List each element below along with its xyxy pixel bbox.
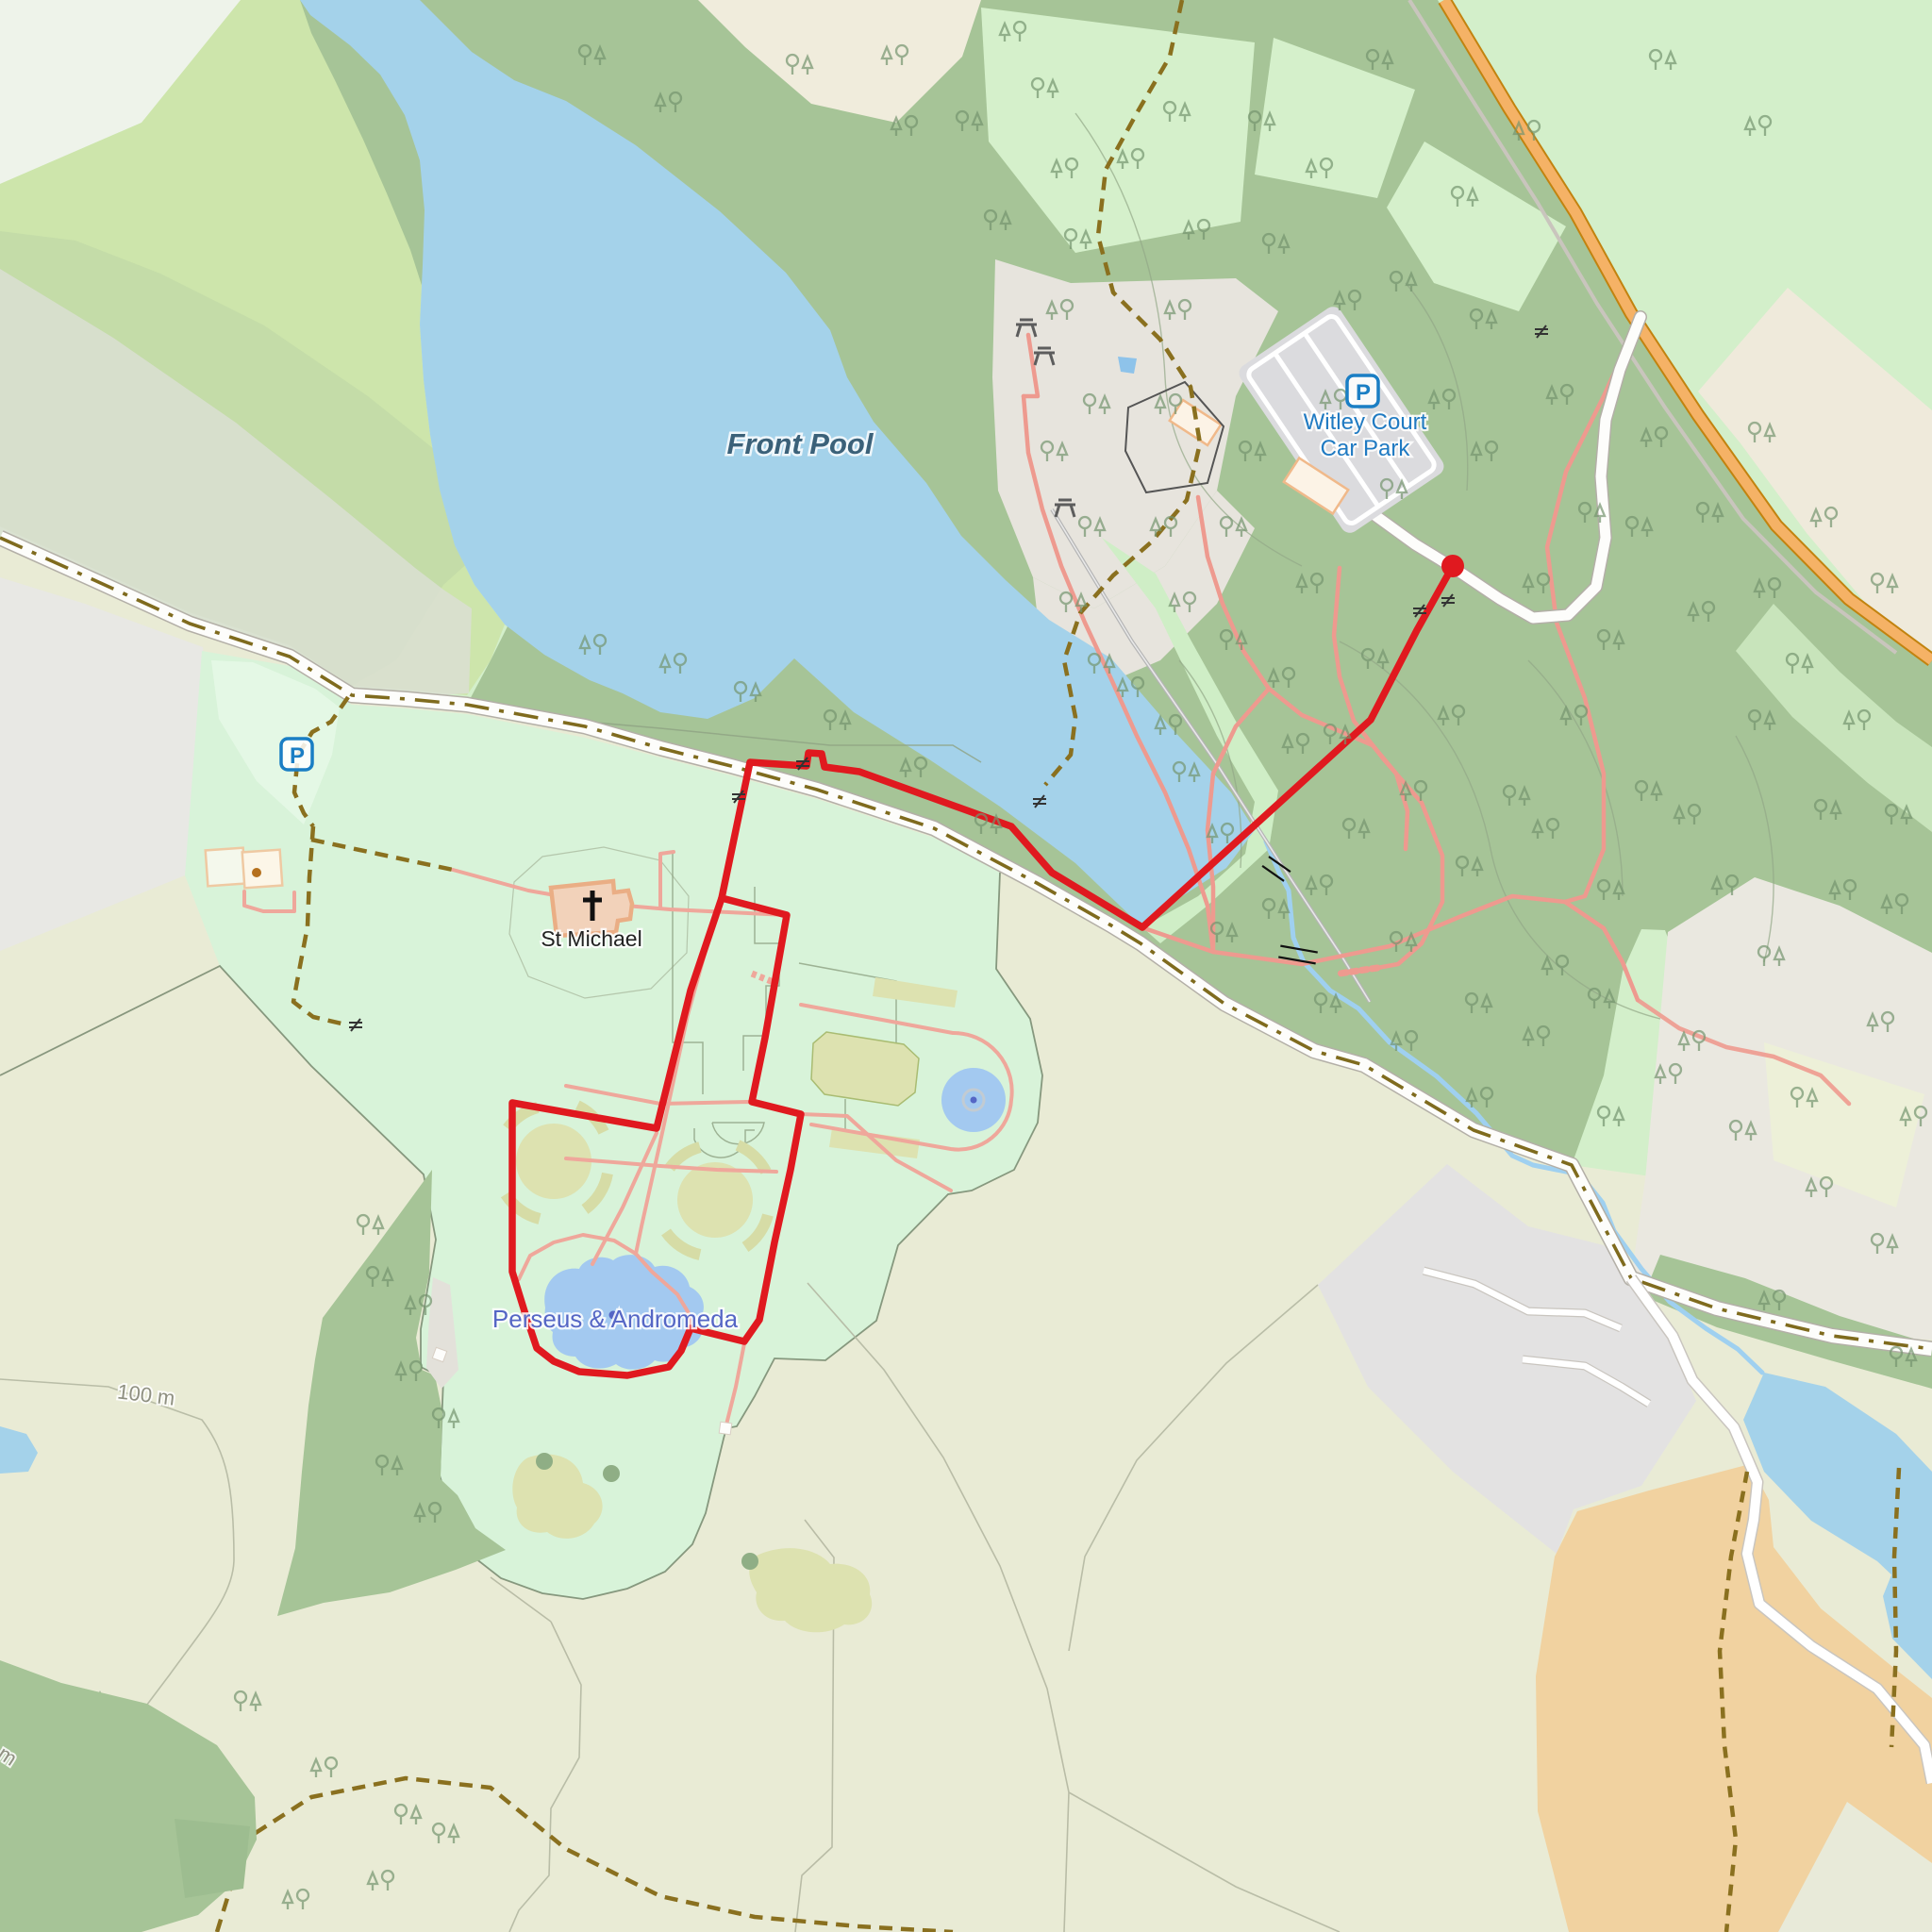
svg-text:P: P xyxy=(1356,380,1371,406)
svg-text:Perseus & Andromeda: Perseus & Andromeda xyxy=(492,1305,739,1333)
svg-text:Witley Court: Witley Court xyxy=(1304,409,1427,435)
svg-text:Car Park: Car Park xyxy=(1321,436,1411,461)
svg-text:St Michael: St Michael xyxy=(541,926,641,951)
svg-text:Front Pool: Front Pool xyxy=(727,427,874,460)
svg-text:P: P xyxy=(290,743,305,769)
